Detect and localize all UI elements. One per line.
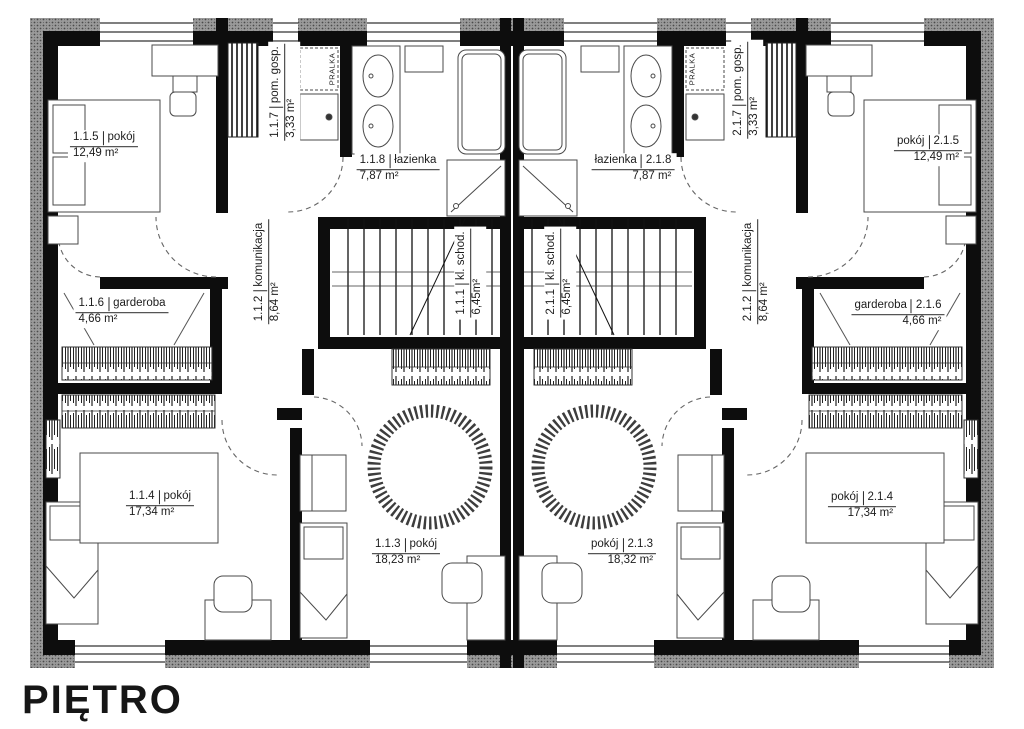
room-label-2-1-5: 2.1.5pokój 12,49 m² (892, 134, 964, 166)
room-label-1-1-7: 1.1.7pom. gosp. 3,33 m² (268, 41, 300, 142)
room-label-1-1-2: 1.1.2komunikacja 8,64 m² (252, 218, 284, 327)
room-label-1-1-1: 1.1.1kl. schod. 6,45m² (454, 226, 486, 319)
room-label-1-1-6: 1.1.6garderoba 4,66 m² (73, 296, 170, 328)
room-label-1-1-4: 1.1.4pokój 17,34 m² (124, 489, 196, 521)
room-label-2-1-1: 2.1.1kl. schod. 6,45m² (544, 226, 576, 319)
room-label-1-1-5: 1.1.5pokój 12,49 m² (68, 130, 140, 162)
room-label-2-1-4: 2.1.4pokój 17,34 m² (826, 490, 898, 522)
room-label-2-1-2: 2.1.2komunikacja 8,64 m² (741, 218, 773, 327)
room-label-2-1-6: 2.1.6garderoba 4,66 m² (849, 298, 946, 330)
floor-plan-drawing (0, 0, 1024, 729)
room-label-2-1-8: 2.1.8łazienka 7,87 m² (590, 153, 677, 185)
floor-plan-page: 1.1.5pokój 12,49 m² 1.1.7pom. gosp. 3,33… (0, 0, 1024, 729)
floor-title: PIĘTRO (22, 678, 183, 723)
washer-label-left: PRALKA (328, 53, 337, 86)
room-label-1-1-3: 1.1.3pokój 18,23 m² (370, 537, 442, 569)
room-label-2-1-7: 2.1.7pom. gosp. 3,33 m² (731, 39, 763, 140)
room-label-2-1-3: 2.1.3pokój 18,32 m² (586, 537, 658, 569)
room-label-1-1-8: 1.1.8łazienka 7,87 m² (355, 153, 442, 185)
washer-label-right: PRALKA (688, 53, 697, 86)
